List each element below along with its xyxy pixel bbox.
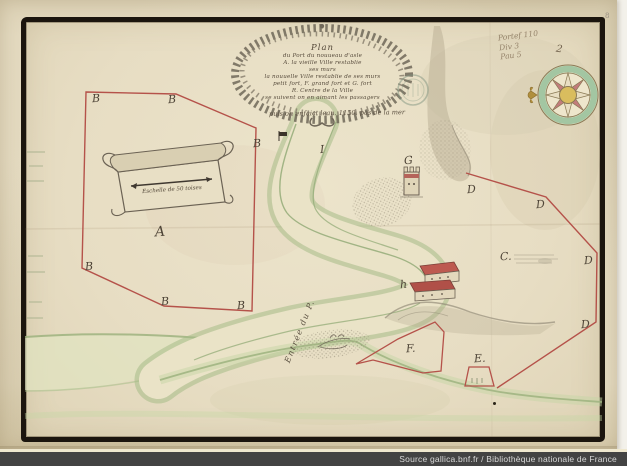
map-letter-d: D: [584, 254, 594, 268]
cartouche-line: Plan: [240, 43, 405, 53]
cartouche-text: Plandu Port du nouueau d'asleA. la vieil…: [240, 43, 405, 102]
gallica-map-scan: Plandu Port du nouueau d'asleA. la vieil…: [0, 0, 627, 466]
cartouche-line: A. la vieille Ville restablie: [240, 60, 405, 67]
map-letter-e: E.: [474, 352, 486, 366]
cartouche-line: la nouuelle Ville restablie de ses murs: [240, 74, 405, 81]
map-letter-a: A: [154, 224, 165, 241]
map-letter-b: B: [168, 93, 177, 107]
map-letter-b: B: [237, 299, 246, 313]
map-letter-b: B: [253, 137, 262, 151]
map-letter-d: D: [467, 183, 477, 197]
map-letter-d: D: [536, 198, 546, 212]
map-letter-b: B: [161, 295, 170, 309]
map-letter-f: F.: [406, 342, 416, 356]
source-attribution-bar: Source gallica.bnf.fr / Bibliothèque nat…: [0, 452, 627, 466]
map-letter-c: C.: [500, 250, 512, 264]
ink-dot: [493, 402, 496, 405]
cartouche-line: du Port du nouueau d'asle: [240, 53, 405, 60]
cartouche-line: petit fort, F. grand fort et G. fort: [240, 81, 405, 88]
map-letter-b: B: [85, 260, 94, 274]
cartouche-line: ses murs: [240, 67, 405, 74]
cartouche-line: se suivent on en aimant les passagers: [240, 95, 405, 102]
corner-mark: 8: [605, 12, 609, 20]
cartouche-line: R. Centre de la Ville: [240, 88, 405, 95]
shelfmark-annotation: Portef 110Div 3Pau 5: [497, 29, 540, 62]
map-letter-d: D: [581, 318, 591, 332]
map-letter-i: I: [320, 143, 325, 156]
map-letter-b: B: [92, 92, 101, 106]
map-letter-h: h: [400, 278, 408, 291]
map-letter-g: G: [404, 154, 414, 168]
